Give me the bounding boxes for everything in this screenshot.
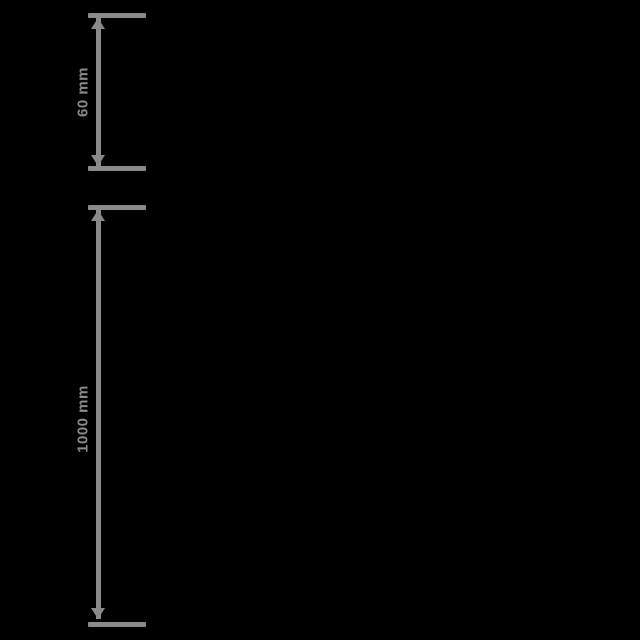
dimension-callout-bottom: 1000 mm	[0, 0, 640, 640]
extension-line-bottom	[88, 622, 146, 627]
dimension-label: 1000 mm	[75, 385, 92, 453]
arrow-down-icon	[91, 608, 105, 619]
dimension-diagram: 60 mm 1000 mm	[0, 0, 640, 640]
dimension-line	[96, 210, 101, 619]
arrow-up-icon	[91, 210, 105, 221]
